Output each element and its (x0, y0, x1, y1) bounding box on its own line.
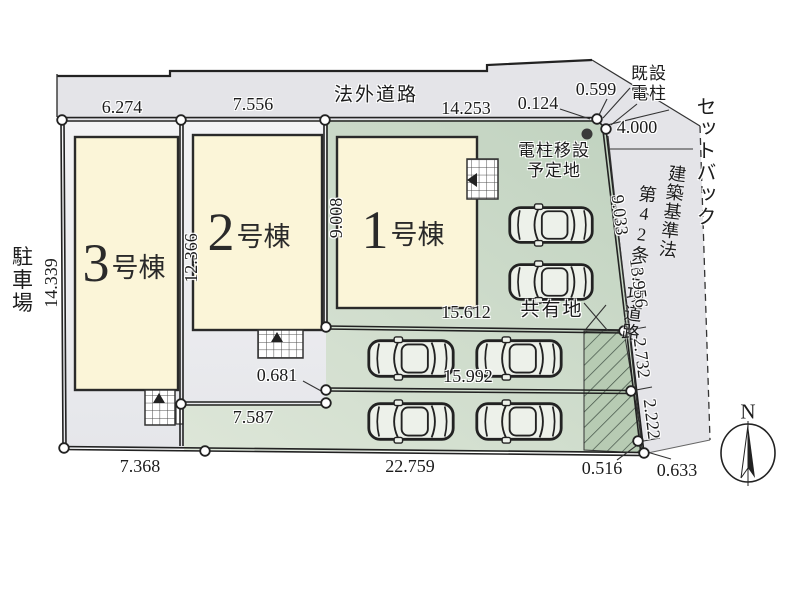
existing-pole-line1: 既設 (631, 64, 667, 84)
road-top-label: 法外道路 (334, 86, 418, 105)
dim-top-mid: 7.556 (233, 95, 274, 113)
dim-lot2-width: 7.587 (233, 408, 274, 426)
dim-road-seg3: 2.732 (631, 337, 654, 379)
site-plan: 6.274 7.556 法外道路 14.253 0.124 0.599 4.00… (0, 0, 800, 600)
dim-road-seg4: 2.222 (641, 398, 664, 440)
dim-left-edge: 14.339 (42, 258, 60, 308)
dim-shared-width: 15.612 (441, 303, 491, 321)
utility-pole-dot (582, 129, 593, 140)
building-3-suffix: 号棟 (112, 255, 166, 282)
pole-relocation-line1: 電柱移設 (518, 141, 590, 161)
building-1-label: 1 号棟 (362, 203, 445, 257)
building-1-suffix: 号棟 (391, 222, 445, 249)
dim-lot1-depth: 9.008 (327, 198, 345, 239)
porch-grid-building2 (258, 330, 303, 358)
dim-bottom-left: 7.368 (120, 457, 161, 475)
car-icon (477, 400, 561, 443)
car-icon (369, 400, 453, 443)
existing-pole-line2: 電柱 (631, 84, 667, 104)
pole-relocation-line2: 予定地 (518, 161, 590, 181)
dim-bottom-main: 22.759 (385, 457, 435, 475)
building-2-label: 2 号棟 (208, 205, 291, 259)
building-1-number: 1 (362, 203, 389, 257)
car-icon (369, 337, 453, 380)
dim-lot2-depth: 12.366 (182, 233, 200, 283)
dim-row-width: 15.992 (443, 367, 493, 385)
compass-north-label: N (740, 402, 755, 423)
car-icon (510, 204, 593, 246)
parking-area-label: 駐車場 (11, 246, 32, 315)
porch-grid-building1 (467, 159, 498, 199)
dim-top-corner: 0.599 (576, 80, 617, 98)
dim-corner-b1: 0.516 (582, 459, 623, 477)
pole-relocation-label: 電柱移設 予定地 (518, 141, 590, 181)
building-3-label: 3 号棟 (83, 236, 166, 290)
dim-road-width: 4.000 (617, 118, 658, 136)
dim-offset-small: 0.681 (257, 366, 298, 384)
setback-label: セットバック (694, 96, 714, 228)
building-2-number: 2 (208, 205, 235, 259)
shared-land-label: 共有地 (520, 301, 583, 320)
dim-corner-b2: 0.633 (657, 461, 698, 479)
existing-pole-label: 既設 電柱 (631, 64, 667, 104)
dim-road-seg1: 9.033 (609, 194, 632, 236)
dim-top-right: 14.253 (441, 99, 491, 117)
building-2-suffix: 号棟 (237, 224, 291, 251)
dim-top-left: 6.274 (102, 98, 143, 116)
car-icon (510, 261, 593, 303)
compass-icon (721, 421, 775, 486)
dim-top-small: 0.124 (518, 94, 559, 112)
building-3-number: 3 (83, 236, 110, 290)
